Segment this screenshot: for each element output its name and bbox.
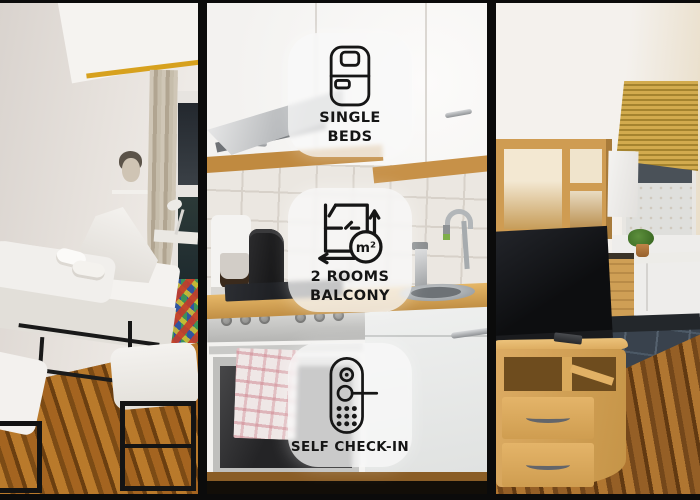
floor-plan-icon: m² <box>314 195 386 267</box>
shelf-compartment <box>504 149 562 229</box>
potted-plant-pot <box>636 244 649 257</box>
tv-stand-shelf-divider <box>562 357 572 391</box>
amenity-badge-self-check-in: SELF CHECK-IN <box>288 343 412 467</box>
drawer-handle <box>526 460 570 470</box>
listing-photo-collage: SINGLE BEDS m² 2 ROOMS BALCONY <box>0 0 700 500</box>
flat-screen-tv <box>496 226 613 344</box>
badge-label: BEDS <box>327 130 372 146</box>
kitchen-panel: SINGLE BEDS m² 2 ROOMS BALCONY <box>207 3 487 494</box>
portrait-photo <box>116 151 146 191</box>
wall-shelf-unit <box>496 139 612 239</box>
portrait-face <box>122 158 140 182</box>
soap-dispenser <box>415 249 427 287</box>
third-bed-frame <box>0 421 42 493</box>
plinth-shadow <box>604 313 700 332</box>
tv-stand-drawer <box>502 443 594 487</box>
amenity-badge-single-beds: SINGLE BEDS <box>288 33 412 157</box>
drawer-handle <box>526 413 570 423</box>
cabinet-gap <box>425 3 427 163</box>
badge-label: 2 ROOMS <box>311 270 390 286</box>
shelf-compartment <box>570 191 602 229</box>
badge-label: SELF CHECK-IN <box>291 440 409 455</box>
bedroom-panel <box>0 3 198 494</box>
shelf-compartment <box>570 149 602 183</box>
faucet-aerator <box>443 234 450 240</box>
plinth-shadow <box>207 481 487 494</box>
badge-label: SINGLE <box>319 111 380 127</box>
window-glass-upper <box>178 103 198 185</box>
square-meter-unit: m² <box>356 240 376 256</box>
cabinet-handle <box>445 109 472 119</box>
tv-stand-drawer <box>502 397 594 439</box>
tv-stand-angled-shelf <box>570 364 614 385</box>
badge-label: BALCONY <box>310 289 390 305</box>
white-wall-cabinet <box>607 151 638 218</box>
living-room-panel <box>496 3 700 494</box>
amenity-badge-rooms-balcony: m² 2 ROOMS BALCONY <box>288 188 412 312</box>
second-bed-frame <box>120 401 196 491</box>
tv-stand <box>496 349 626 487</box>
bed-frame-crossbar <box>125 444 191 448</box>
door-lock-icon <box>320 355 380 437</box>
single-bed-icon <box>328 44 372 108</box>
tv-stand-open-shelf <box>504 357 616 391</box>
